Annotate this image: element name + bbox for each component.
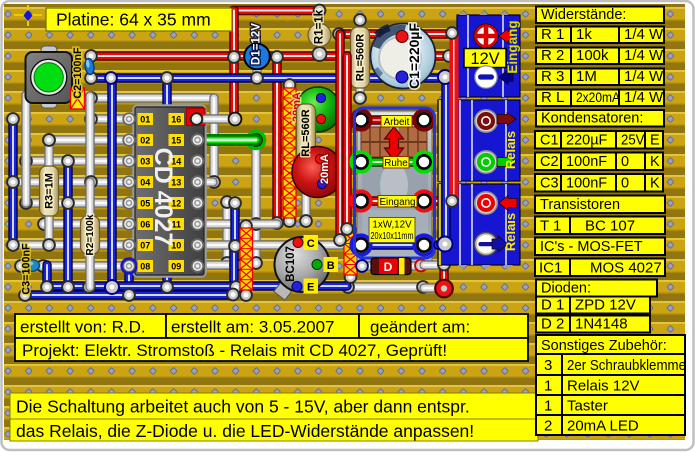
svg-text:C3=100nF: C3=100nF	[21, 243, 33, 295]
svg-text:1M: 1M	[576, 68, 597, 85]
svg-text:C1: C1	[540, 133, 559, 149]
svg-text:Eingang: Eingang	[380, 197, 416, 208]
svg-text:1N4148: 1N4148	[575, 316, 628, 333]
svg-text:K: K	[650, 176, 660, 192]
svg-text:B: B	[327, 260, 335, 272]
svg-text:Ruhe: Ruhe	[384, 158, 408, 169]
svg-text:C2=100nF: C2=100nF	[72, 47, 84, 99]
svg-text:das Relais, die Z-Diode u. die: das Relais, die Z-Diode u. die LED-Wider…	[16, 421, 474, 441]
svg-text:04: 04	[140, 178, 150, 188]
svg-text:2x20mA: 2x20mA	[576, 90, 620, 105]
svg-text:ZPD 12V: ZPD 12V	[575, 297, 636, 314]
svg-text:08: 08	[140, 262, 150, 272]
svg-text:100nF: 100nF	[566, 154, 607, 170]
svg-text:Taster: Taster	[567, 398, 608, 415]
svg-text:K: K	[650, 154, 660, 170]
svg-text:Projekt: Elektr. Stromstoß - R: Projekt: Elektr. Stromstoß - Relais mit …	[22, 341, 447, 360]
svg-text:Dioden:: Dioden:	[541, 281, 591, 297]
svg-text:2er Schraubklemme: 2er Schraubklemme	[567, 357, 686, 374]
svg-text:R1=1k: R1=1k	[314, 9, 326, 44]
svg-text:Transistoren: Transistoren	[540, 197, 620, 213]
svg-text:RL=560R: RL=560R	[355, 34, 367, 81]
svg-text:BC 107: BC 107	[585, 218, 635, 235]
svg-text:16: 16	[171, 115, 181, 125]
svg-text:E: E	[650, 133, 660, 149]
svg-text:15: 15	[171, 136, 181, 146]
svg-text:1/4 W: 1/4 W	[624, 47, 664, 64]
svg-text:0: 0	[621, 154, 629, 170]
svg-text:R2=100k: R2=100k	[85, 214, 96, 255]
svg-text:D1=12V: D1=12V	[251, 23, 263, 65]
svg-text:2: 2	[544, 418, 552, 435]
svg-text:R 3: R 3	[541, 68, 564, 85]
svg-text:220µF: 220µF	[566, 133, 608, 149]
svg-text:C: C	[307, 238, 315, 250]
svg-text:20x10x11mm: 20x10x11mm	[371, 231, 414, 242]
svg-text:07: 07	[140, 241, 150, 251]
svg-text:09: 09	[171, 262, 181, 272]
svg-text:1/4 W: 1/4 W	[624, 26, 664, 43]
svg-text:CD 4027: CD 4027	[149, 148, 177, 247]
svg-text:3: 3	[544, 357, 552, 374]
svg-text:Eingang: Eingang	[505, 20, 520, 73]
svg-text:C1=220µF: C1=220µF	[406, 23, 422, 89]
svg-text:MOS 4027: MOS 4027	[590, 260, 662, 277]
svg-text:R L: R L	[541, 89, 564, 106]
svg-text:erstellt am: 3.05.2007: erstellt am: 3.05.2007	[171, 318, 334, 337]
svg-text:T 1: T 1	[540, 218, 561, 235]
svg-text:E: E	[307, 282, 314, 294]
svg-text:100k: 100k	[576, 47, 609, 64]
svg-text:1/4 W: 1/4 W	[624, 68, 664, 85]
svg-text:Sonstiges Zubehör:: Sonstiges Zubehör:	[541, 338, 667, 354]
svg-text:1xW,12V: 1xW,12V	[372, 220, 412, 231]
svg-text:Arbeit: Arbeit	[384, 117, 410, 128]
svg-text:0: 0	[621, 176, 629, 192]
svg-text:C2: C2	[540, 154, 559, 170]
svg-text:1: 1	[544, 378, 552, 395]
svg-text:Relais: Relais	[503, 131, 518, 169]
svg-text:20mA LED: 20mA LED	[567, 418, 639, 435]
svg-text:03: 03	[140, 157, 150, 167]
svg-text:1k: 1k	[576, 26, 592, 43]
svg-text:R 1: R 1	[541, 26, 564, 43]
svg-text:Relais 12V: Relais 12V	[567, 378, 640, 395]
svg-text:R 2: R 2	[541, 47, 564, 64]
svg-text:D: D	[384, 260, 393, 274]
svg-text:05: 05	[140, 199, 150, 209]
svg-text:1: 1	[544, 398, 552, 415]
svg-text:BC107: BC107	[285, 246, 297, 282]
svg-text:Kondensatoren:: Kondensatoren:	[541, 111, 643, 127]
svg-text:02: 02	[140, 136, 150, 146]
svg-text:C3: C3	[540, 176, 559, 192]
svg-text:Die Schaltung arbeitet auch vo: Die Schaltung arbeitet auch von 5 - 15V,…	[16, 397, 470, 417]
svg-text:RL=560R: RL=560R	[300, 109, 312, 156]
svg-text:IC's - MOS-FET: IC's - MOS-FET	[540, 239, 643, 255]
svg-text:01: 01	[140, 115, 150, 125]
svg-text:D 1: D 1	[541, 297, 564, 314]
svg-text:R3=1M: R3=1M	[44, 173, 56, 209]
svg-text:geändert am:: geändert am:	[370, 318, 470, 337]
svg-text:IC1: IC1	[539, 260, 562, 277]
svg-text:Platine: 64 x 35 mm: Platine: 64 x 35 mm	[56, 10, 211, 30]
svg-text:Relais: Relais	[503, 213, 518, 251]
svg-text:erstellt von: R.D.: erstellt von: R.D.	[20, 318, 146, 337]
svg-text:100nF: 100nF	[566, 176, 607, 192]
svg-text:25V: 25V	[621, 133, 645, 149]
svg-text:1/4 W: 1/4 W	[624, 89, 664, 106]
svg-text:06: 06	[140, 220, 150, 230]
svg-text:20mA: 20mA	[319, 154, 331, 184]
svg-text:D 2: D 2	[541, 316, 564, 333]
svg-text:Widerstände:: Widerstände:	[541, 7, 626, 23]
